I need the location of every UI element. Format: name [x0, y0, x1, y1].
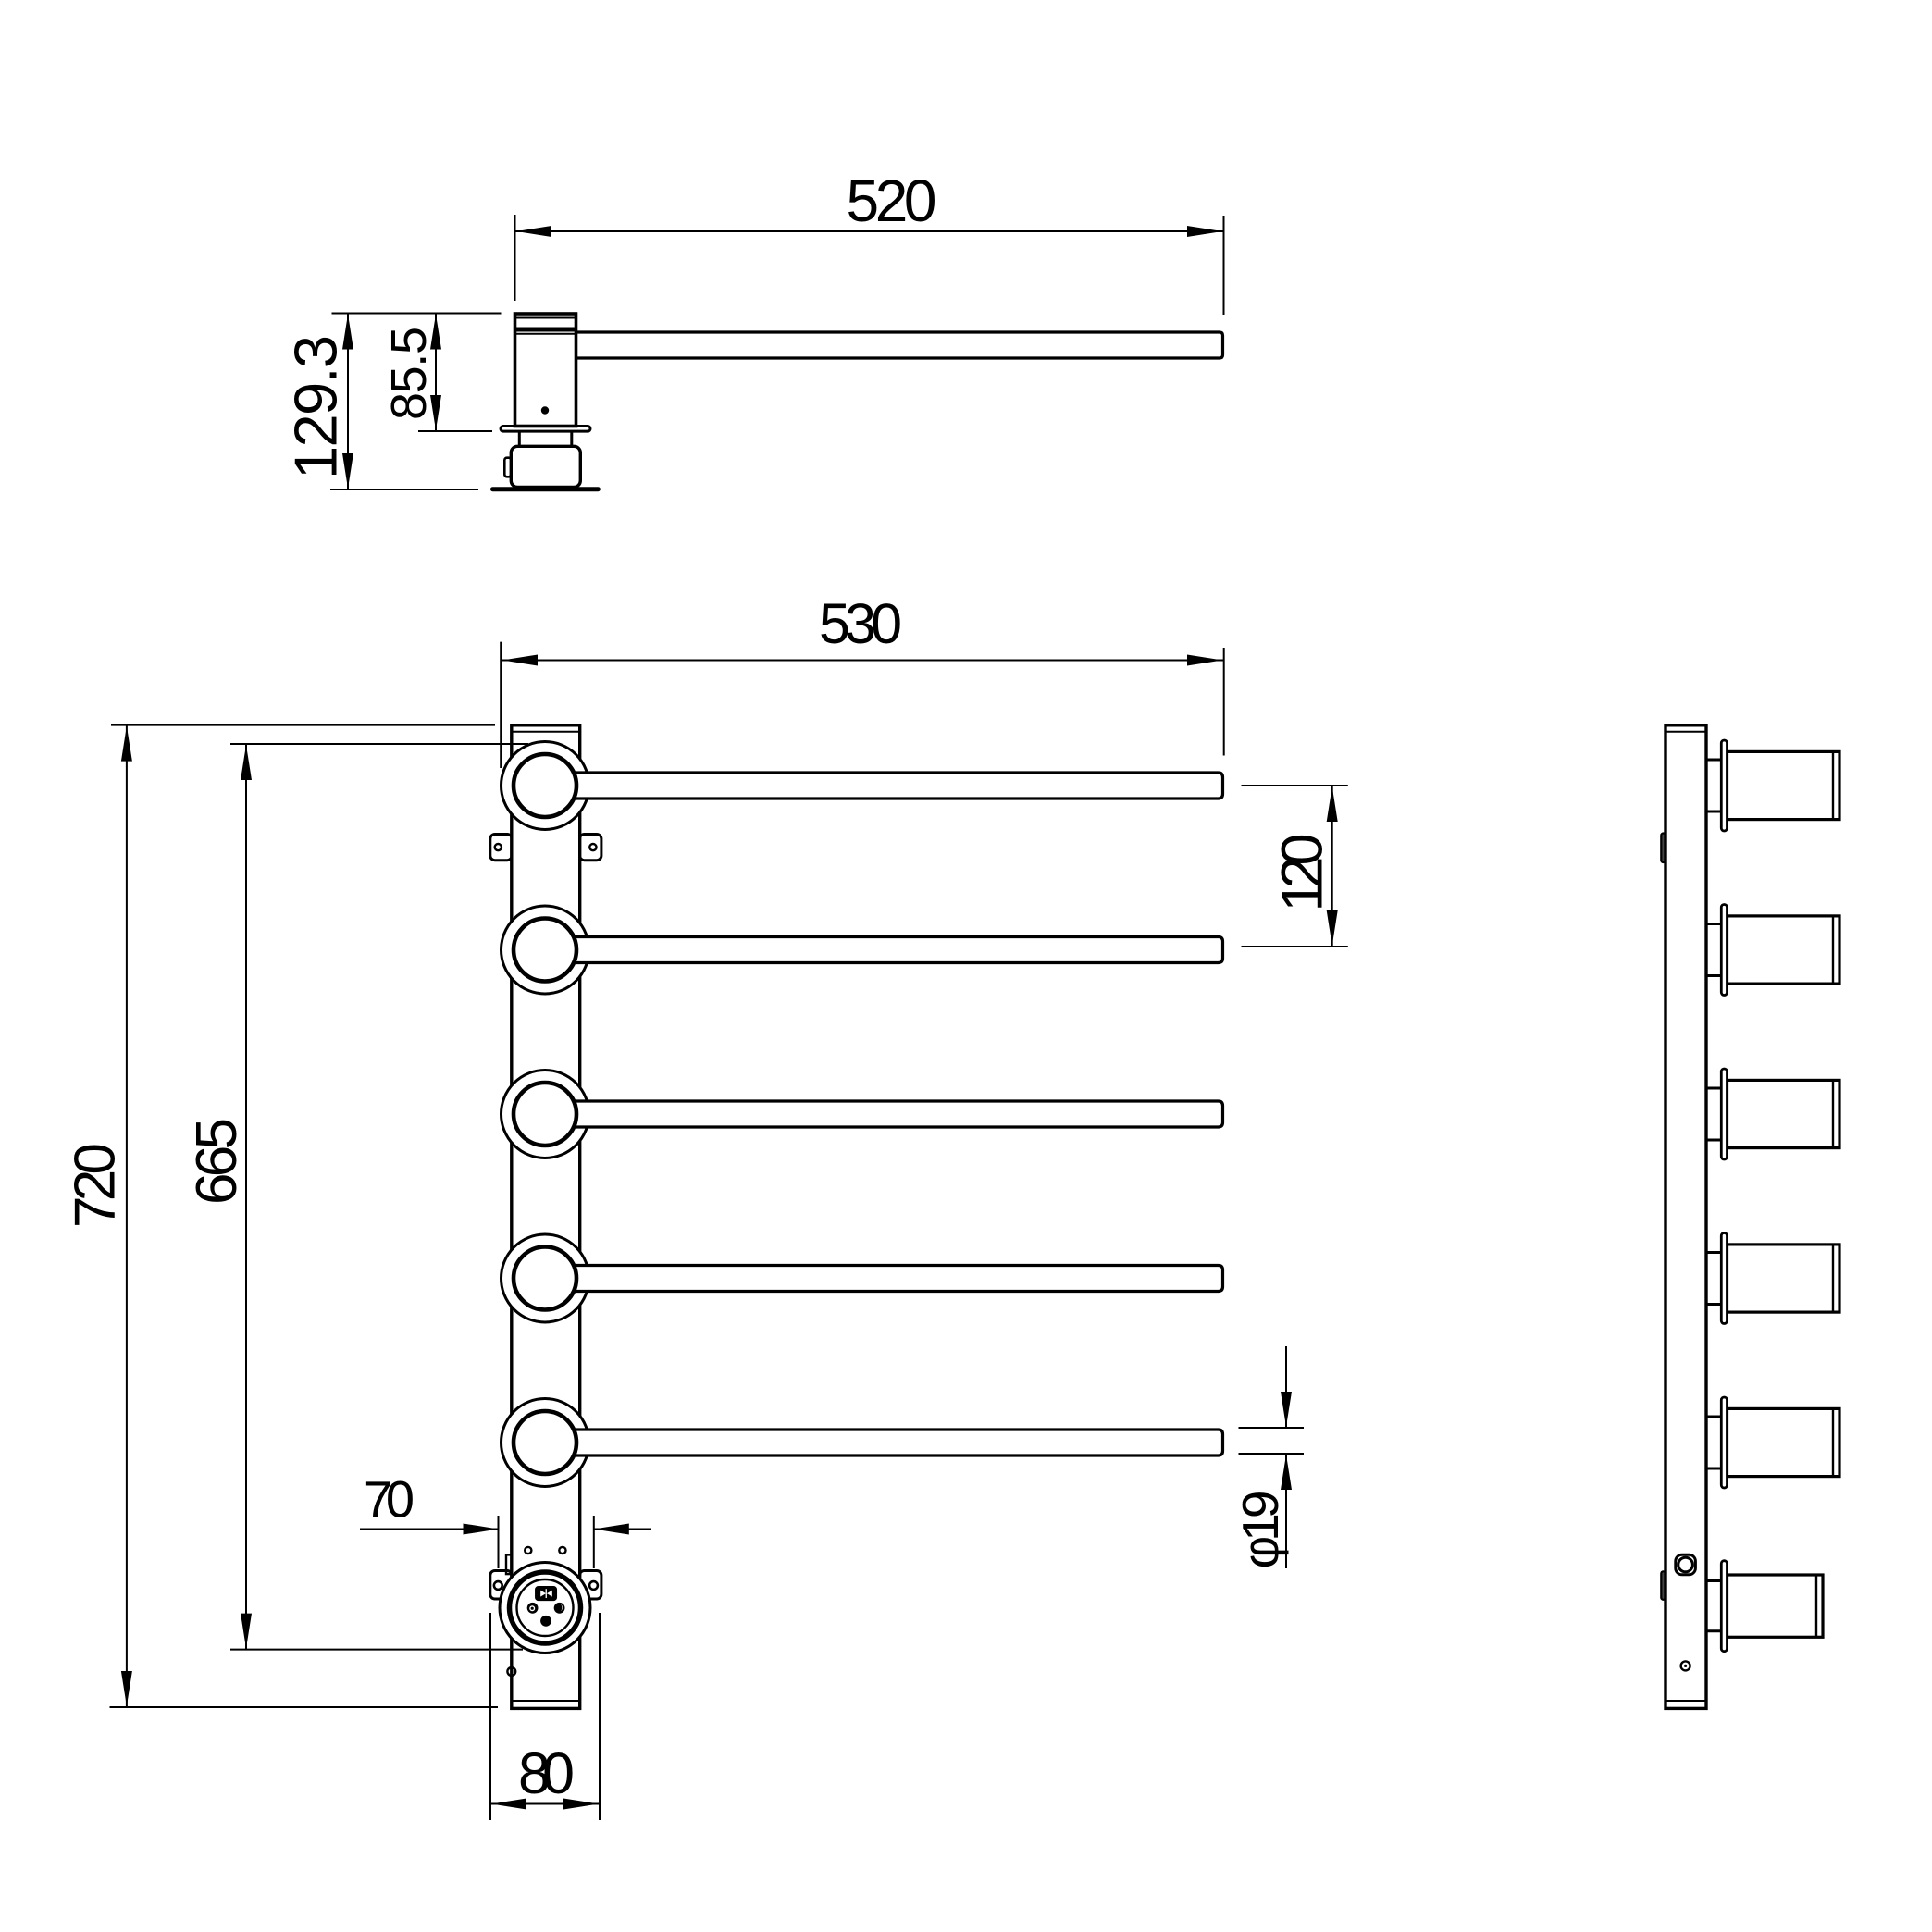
svg-text:129.3: 129.3: [281, 335, 349, 479]
svg-text:φ19: φ19: [1232, 1491, 1289, 1569]
svg-text:530: 530: [819, 592, 902, 655]
svg-text:665: 665: [185, 1118, 249, 1205]
svg-text:70: 70: [364, 1470, 415, 1529]
svg-text:720: 720: [64, 1143, 128, 1228]
svg-text:120: 120: [1270, 834, 1335, 912]
svg-text:520: 520: [847, 167, 937, 234]
svg-text:85.5: 85.5: [381, 327, 437, 420]
svg-text:80: 80: [518, 1741, 575, 1806]
